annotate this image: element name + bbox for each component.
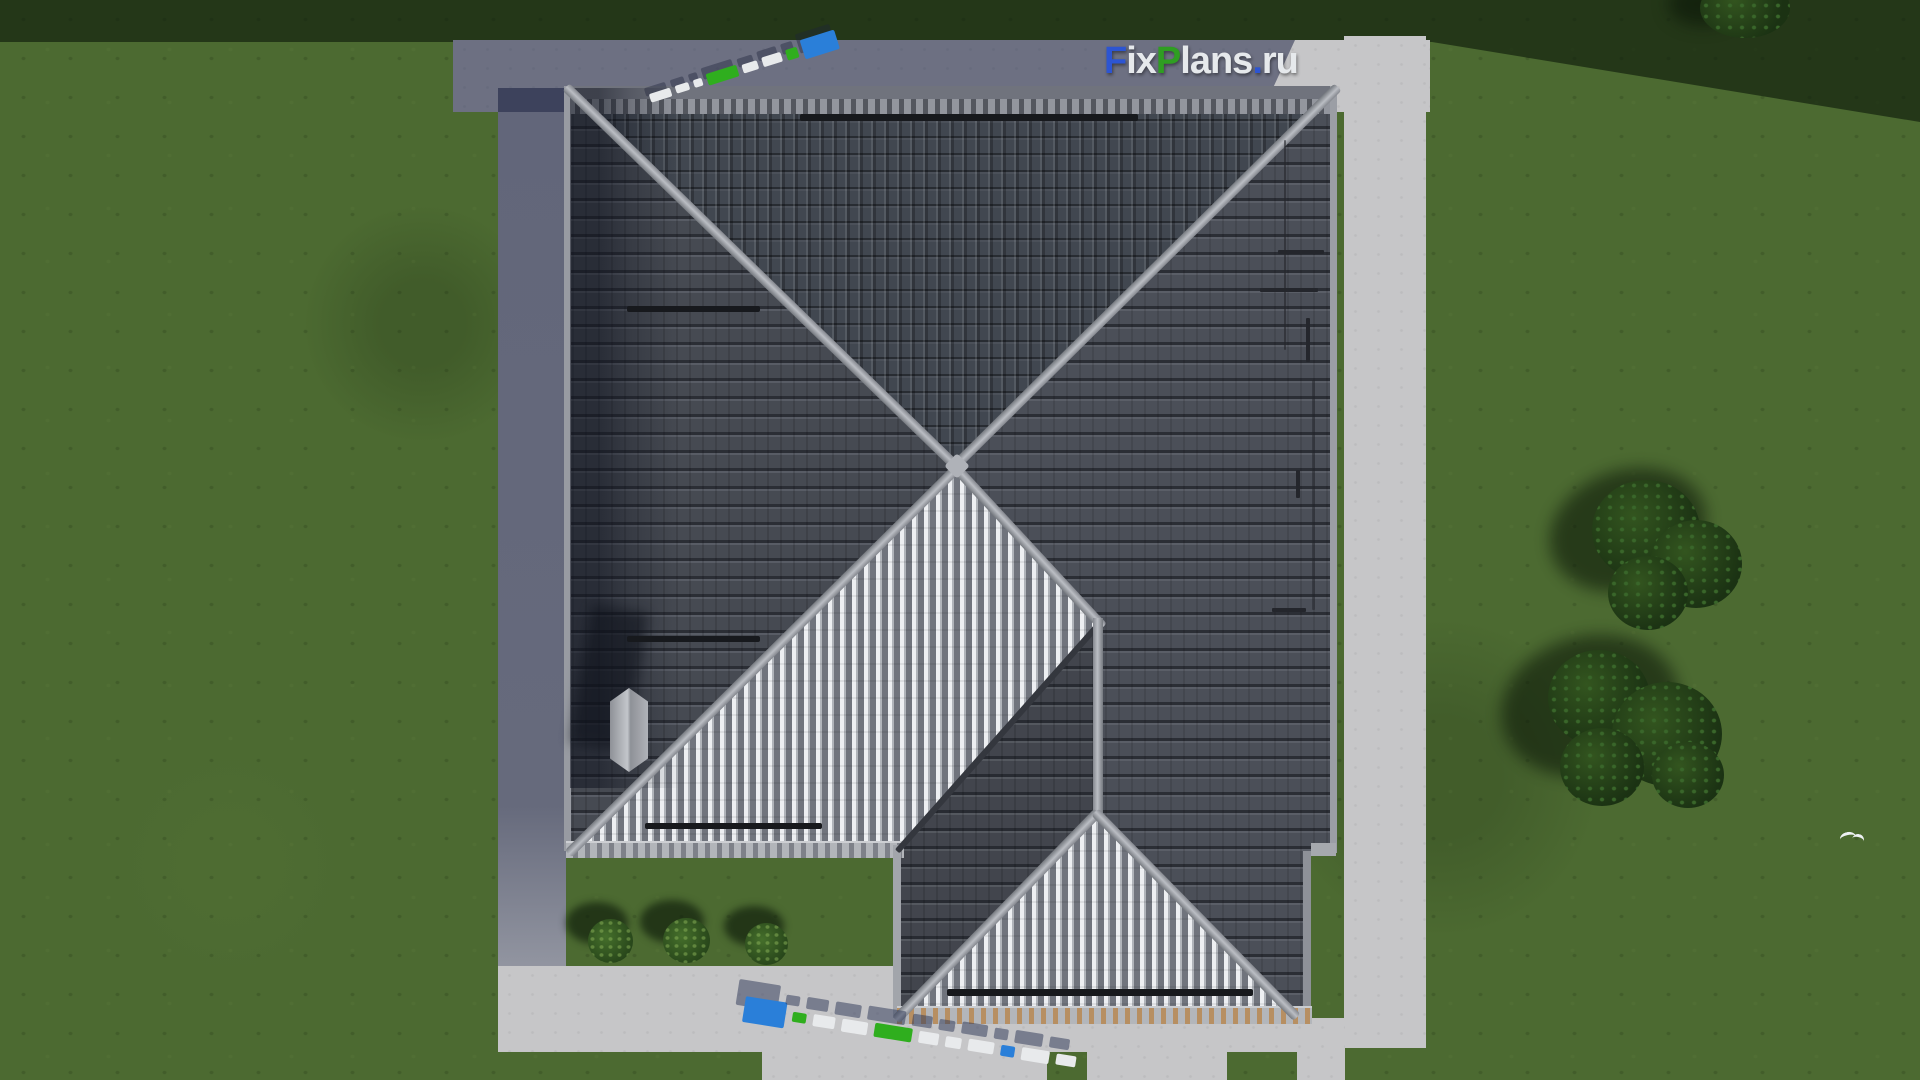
roof-eave-top-tile-ends: [568, 99, 1336, 114]
logo-letter-segment: .: [1252, 40, 1262, 82]
bush: [588, 919, 633, 963]
white-letter-block: [675, 82, 691, 94]
roof-mark: [1296, 470, 1300, 498]
roof-mark: [1260, 288, 1318, 292]
logo-letter-segment: ru: [1262, 40, 1298, 82]
chimney: [610, 688, 648, 772]
tree-canopy: [1652, 742, 1724, 808]
logo-letter-segment: ix: [1126, 40, 1156, 82]
path-right: [1344, 36, 1426, 1048]
snow-guard-bar: [645, 823, 822, 829]
fixplans-logo: FixPlans.ru: [1104, 42, 1298, 80]
logo-letter-segment: lans: [1180, 40, 1252, 82]
roof-mark: [1284, 140, 1286, 350]
roof-eave-bottom: [1311, 843, 1336, 856]
tree-canopy: [1608, 556, 1688, 630]
path-pad: [1297, 1048, 1345, 1080]
snow-guard-bar: [800, 114, 1138, 121]
roof-mark: [1306, 318, 1310, 362]
logo-letter-segment: F: [1104, 40, 1126, 82]
roof-ridge-vertical: [1093, 618, 1103, 818]
white-letter-block: [841, 1018, 869, 1035]
roof-mark: [1272, 608, 1306, 612]
roof-eave-extension-bottom: [897, 1006, 1312, 1024]
path-left: [498, 88, 566, 1008]
aerial-house-render: FixPlans.ru: [0, 0, 1920, 1080]
path-bottom: [498, 966, 907, 1052]
bush: [745, 923, 788, 965]
white-letter-block: [693, 78, 704, 88]
green-letter-block: [792, 1012, 807, 1024]
roof-mark: [1312, 380, 1315, 610]
white-letter-block: [812, 1014, 836, 1029]
white-letter-block: [761, 52, 783, 68]
white-letter-block: [918, 1031, 940, 1046]
roof-eave-bottom: [566, 841, 904, 858]
blue-letter-block: [1000, 1044, 1016, 1057]
tree-canopy: [1560, 728, 1644, 806]
green-letter-block: [785, 46, 800, 60]
roof-eave-extension-left: [893, 845, 901, 1018]
snow-guard-bar: [627, 306, 760, 312]
roof-eave-right: [1330, 86, 1337, 853]
snow-guard-bar: [947, 989, 1253, 996]
green-letter-block: [873, 1023, 913, 1043]
snow-guard-bar: [627, 636, 760, 642]
bush: [663, 918, 710, 963]
white-letter-block: [967, 1039, 995, 1055]
logo-letter-segment: P: [1156, 40, 1180, 82]
white-letter-block: [1055, 1053, 1076, 1067]
white-letter-block: [945, 1035, 963, 1048]
white-letter-block: [1021, 1047, 1051, 1064]
white-letter-block: [649, 87, 673, 102]
white-letter-block: [741, 60, 759, 73]
path-pad: [1087, 1048, 1227, 1080]
roof-eave-extension-right: [1303, 851, 1311, 1016]
